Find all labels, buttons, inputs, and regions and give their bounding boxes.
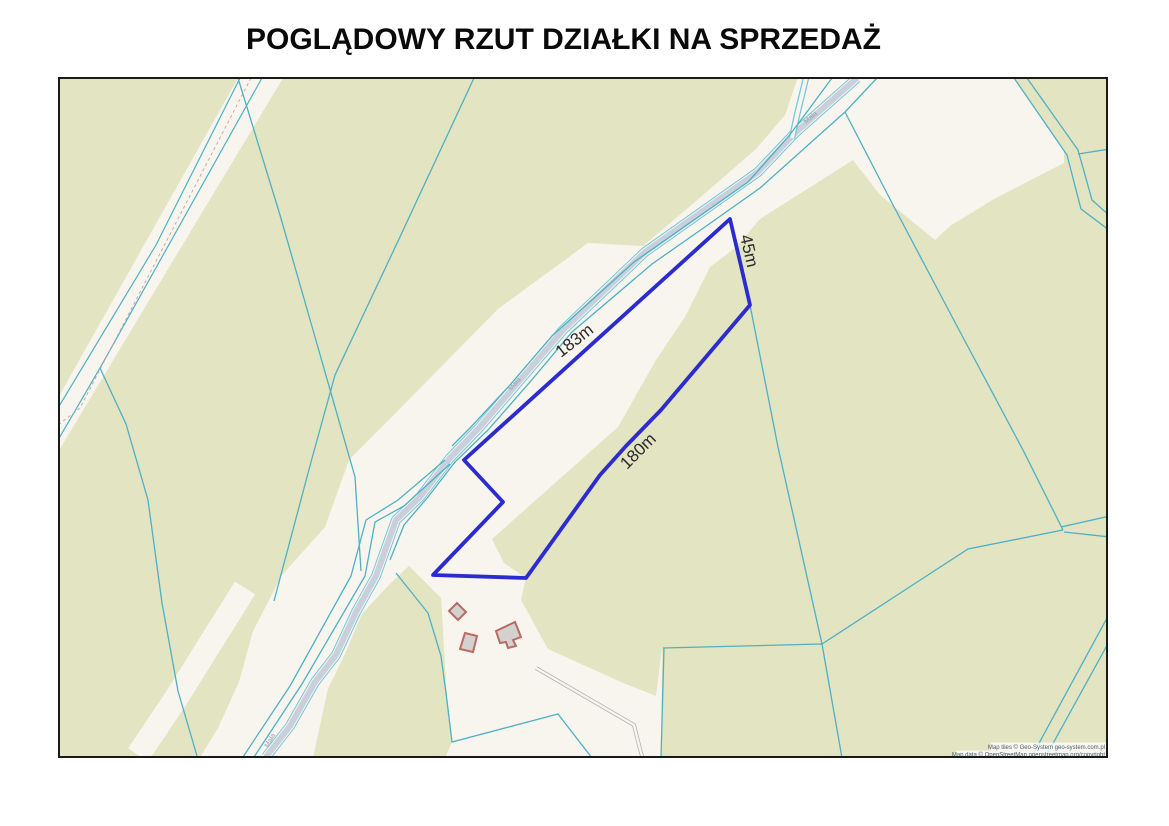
- svg-text:Map tiles © Geo-System geo-sys: Map tiles © Geo-System geo-system.com.pl: [988, 744, 1105, 751]
